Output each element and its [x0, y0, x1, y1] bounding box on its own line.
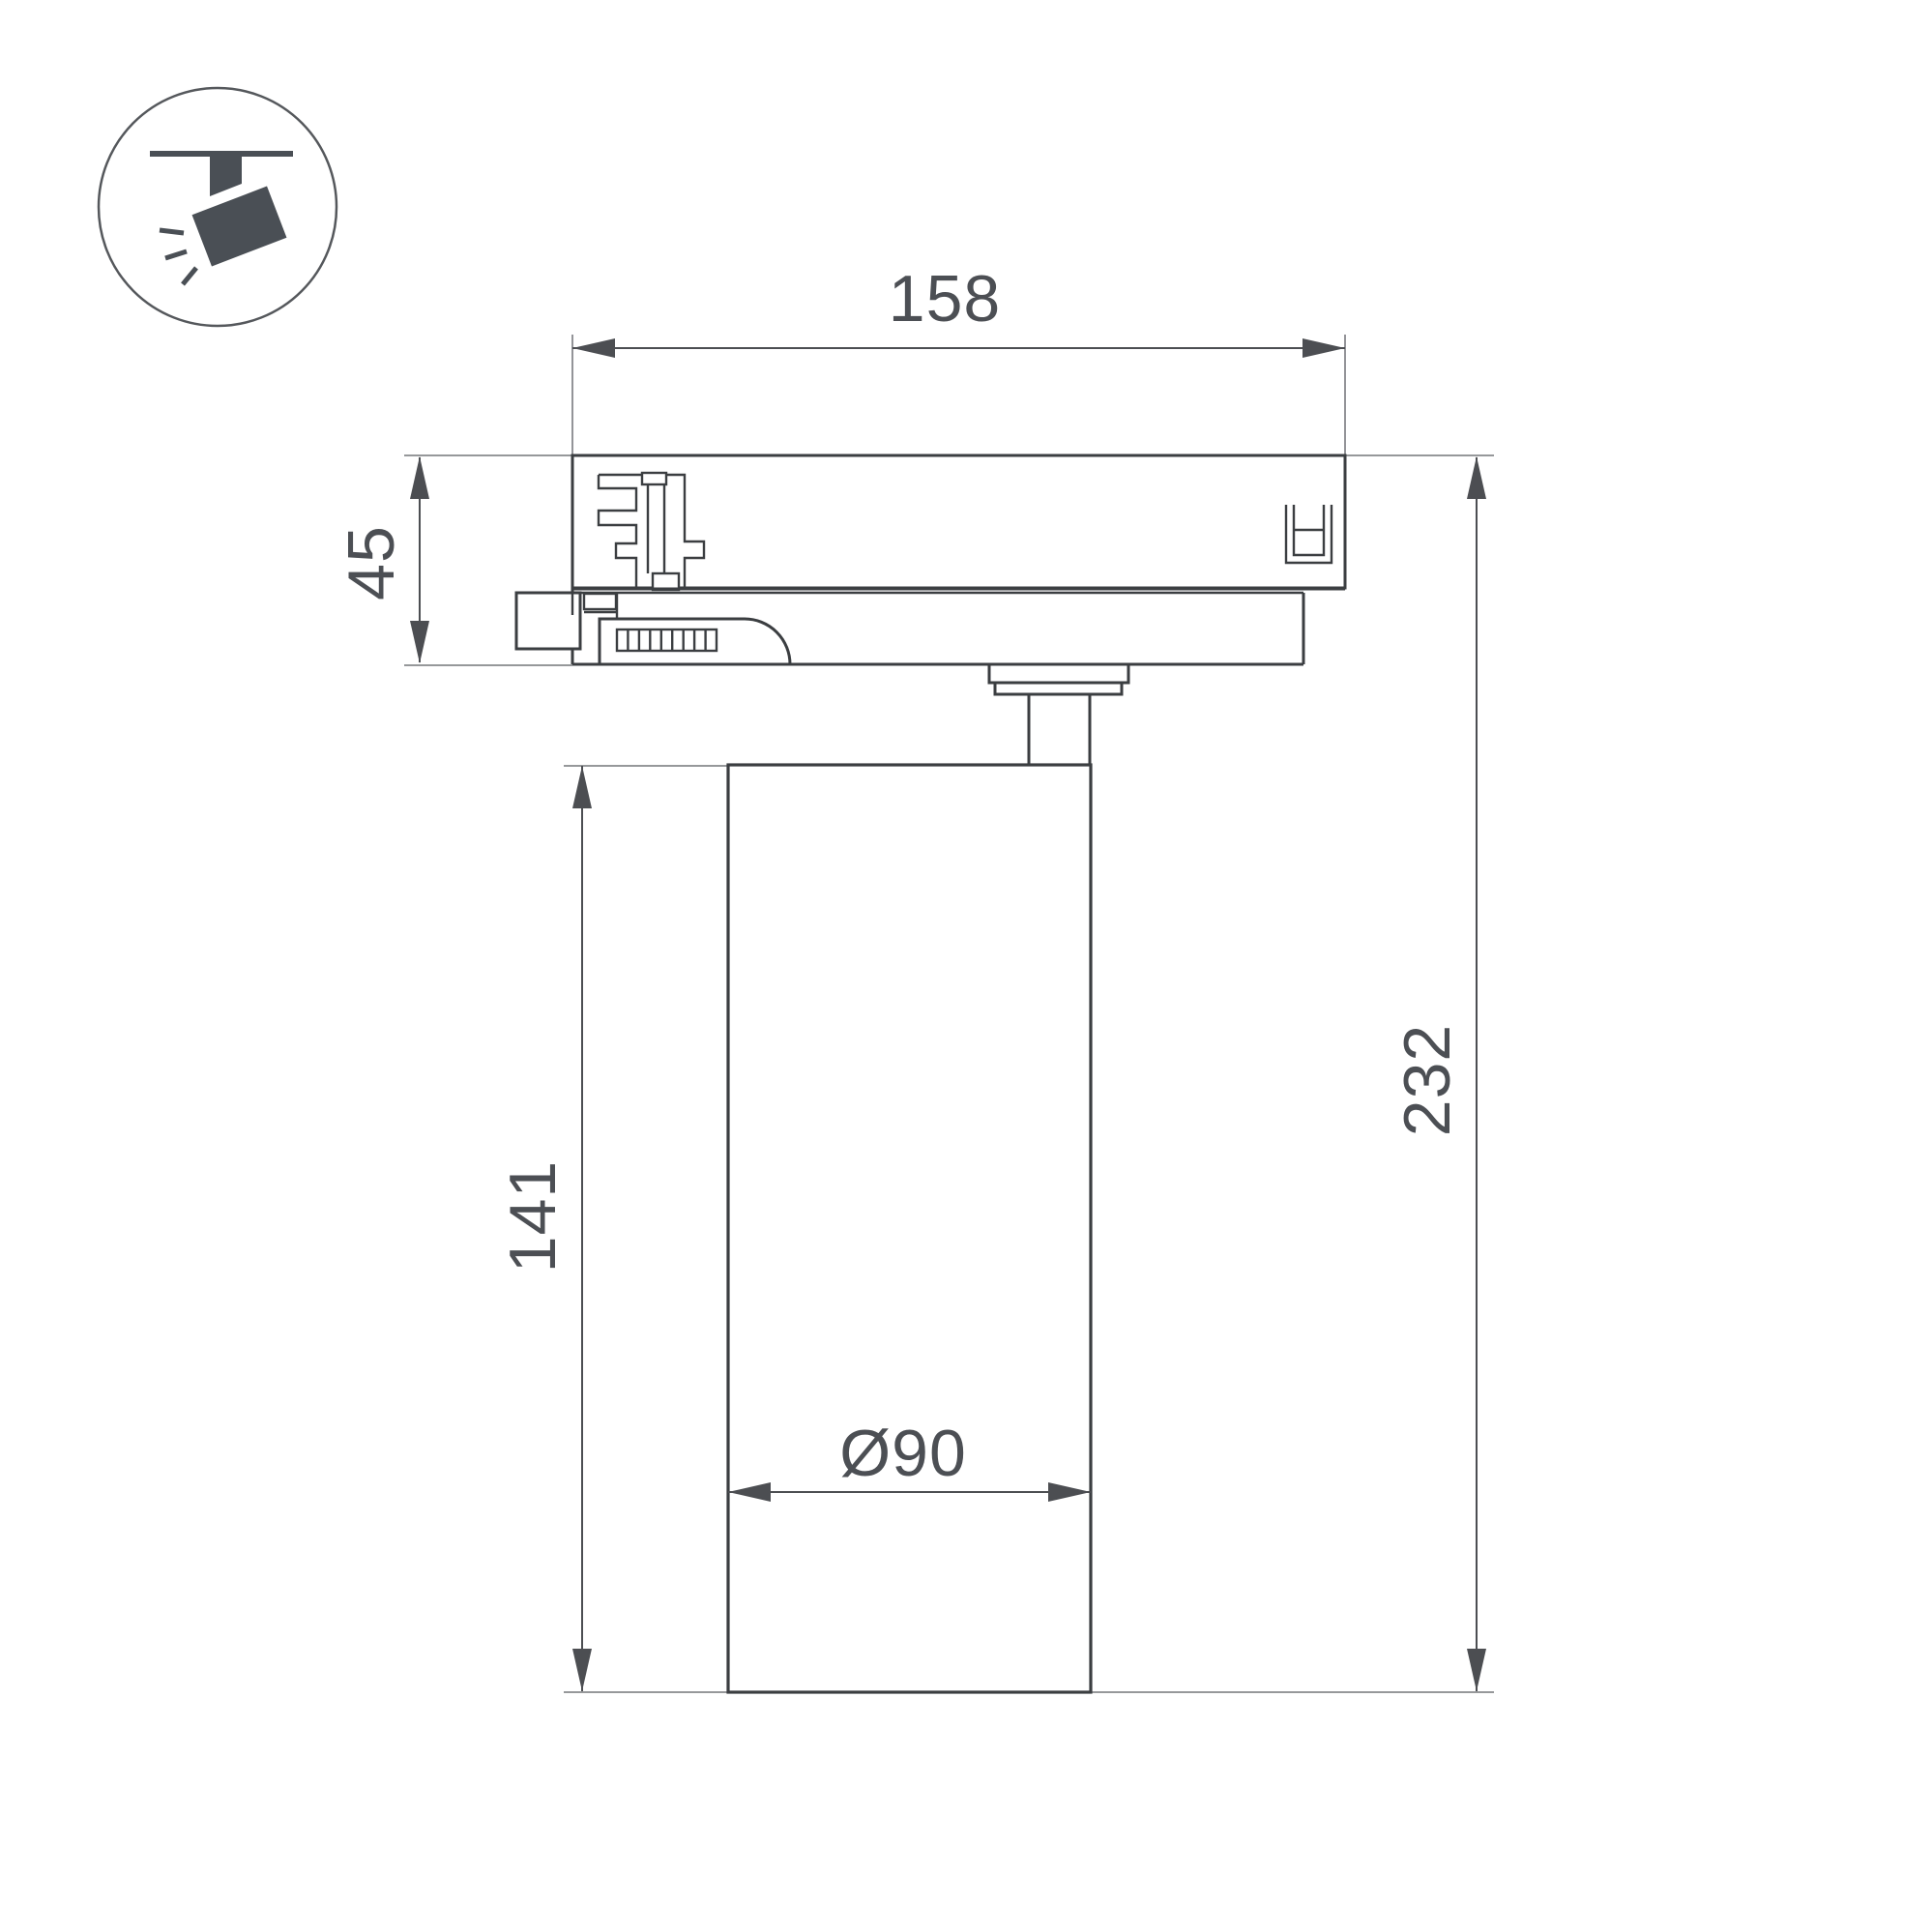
flange-step-lower — [995, 683, 1122, 694]
adapter-lower-band — [516, 589, 1345, 664]
dimension-141: 141 — [496, 766, 592, 1691]
arrowhead-down — [410, 621, 429, 663]
mounting-stem — [989, 664, 1128, 765]
icon-light-ray — [165, 251, 187, 258]
arrowhead-up — [1467, 456, 1486, 499]
arrowhead-down — [572, 1649, 592, 1691]
dimension-45: 45 — [335, 456, 429, 663]
arrowhead-right — [1303, 338, 1345, 358]
flange-step-upper — [989, 664, 1128, 683]
drawing-canvas: 158 45 141 232 Ø90 — [0, 0, 1932, 1932]
release-lever-box — [516, 593, 580, 649]
track-spotlight-icon — [99, 88, 337, 326]
arrowhead-down — [1467, 1649, 1486, 1691]
contact-foot — [653, 573, 679, 590]
arrowhead-up — [410, 456, 429, 499]
dimension-label-body-height: 141 — [496, 1160, 570, 1273]
icon-light-ray — [160, 230, 184, 233]
dimension-label-body-diameter: Ø90 — [839, 1417, 967, 1490]
dip-switch — [617, 629, 717, 651]
icon-mount-stem — [210, 153, 242, 196]
dimension-label-adapter-height: 45 — [335, 525, 408, 600]
lever-tab — [584, 594, 616, 609]
dimension-label-overall-height: 232 — [1390, 1024, 1464, 1136]
dimension-label-top-width: 158 — [889, 262, 1001, 336]
technical-drawing: 158 45 141 232 Ø90 — [0, 0, 1932, 1932]
adapter-housing — [572, 455, 1345, 588]
lamp-body-cylinder — [728, 765, 1091, 1692]
track-adapter — [516, 455, 1345, 765]
arrowhead-left — [572, 338, 615, 358]
dimension-232: 232 — [1390, 456, 1486, 1691]
dimension-158: 158 — [572, 262, 1345, 358]
arrowhead-up — [572, 766, 592, 808]
icon-lamp-body — [192, 187, 287, 267]
stem-sides — [1029, 694, 1090, 765]
contact-cap — [642, 473, 666, 484]
icon-light-ray — [183, 268, 196, 284]
